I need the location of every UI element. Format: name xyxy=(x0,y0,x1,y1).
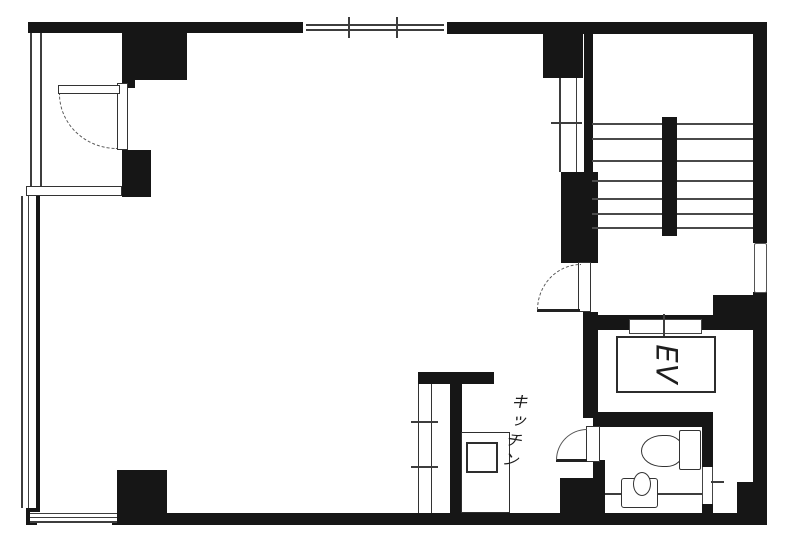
window-left-lower-inner-edge xyxy=(36,196,40,513)
pillar-stair-mid xyxy=(561,172,598,263)
window-left-lower-line xyxy=(28,196,30,508)
kitchen-sink xyxy=(466,442,498,473)
pillar-stair-top xyxy=(543,32,583,78)
vestibule-sill xyxy=(26,186,122,196)
wall-ev-toilet xyxy=(593,412,713,427)
window-top xyxy=(303,21,447,34)
wall-stairwell-left xyxy=(584,33,593,173)
window-left-lower-line xyxy=(21,196,23,508)
window-bottom-left-line xyxy=(30,521,117,523)
pillar-entry-bottom xyxy=(122,150,151,197)
window-right xyxy=(754,243,767,293)
elevator-label: EV xyxy=(651,344,680,384)
toilet-bowl xyxy=(641,435,684,467)
elevator-door xyxy=(629,319,702,334)
pillar-bottom-right xyxy=(737,482,765,514)
wall-bottom xyxy=(112,513,767,525)
pillar-entry-top xyxy=(122,32,187,80)
stair-handrail xyxy=(662,117,677,236)
toilet-door-swing xyxy=(556,429,587,460)
wall-toilet-right-lower xyxy=(702,503,713,513)
window-stairwell-tick xyxy=(551,122,582,124)
window-left-upper-line xyxy=(40,33,42,187)
window-stairwell-line xyxy=(576,78,578,172)
elevator-shaft: EV xyxy=(616,336,716,393)
kitchen-screen-tick xyxy=(411,466,438,468)
hall-door-swing xyxy=(537,264,581,310)
window-bottom-left-line xyxy=(30,517,117,519)
kitchen-screen xyxy=(418,384,432,513)
window-top-line xyxy=(306,29,444,31)
window-stairwell-line xyxy=(559,78,561,172)
wall-toilet-right-upper xyxy=(702,412,713,469)
window-top-line xyxy=(306,24,444,26)
pillar-kitchen-corner xyxy=(560,478,593,514)
window-bottom-left-line xyxy=(30,513,117,515)
window-top-mullion xyxy=(348,17,350,38)
wall-right-upper xyxy=(753,22,767,243)
toilet-window xyxy=(702,467,713,504)
elevator-door-tick xyxy=(663,314,665,338)
wall-toilet-left xyxy=(593,460,605,513)
entry-door-swing xyxy=(59,94,117,149)
floor-plan: EV キッチン xyxy=(0,0,787,548)
toilet-door-leaf xyxy=(586,426,600,462)
kitchen-screen-tick xyxy=(411,421,438,423)
window-left-upper-line xyxy=(30,33,32,187)
window-top-mullion xyxy=(396,17,398,38)
wash-basin-bowl xyxy=(633,472,651,496)
toilet-tank xyxy=(679,430,701,470)
pillar-bottom-left xyxy=(117,470,167,514)
entry-door-leaf xyxy=(58,85,120,94)
toilet-window-tick xyxy=(711,481,724,483)
wall-top-right xyxy=(445,22,767,34)
